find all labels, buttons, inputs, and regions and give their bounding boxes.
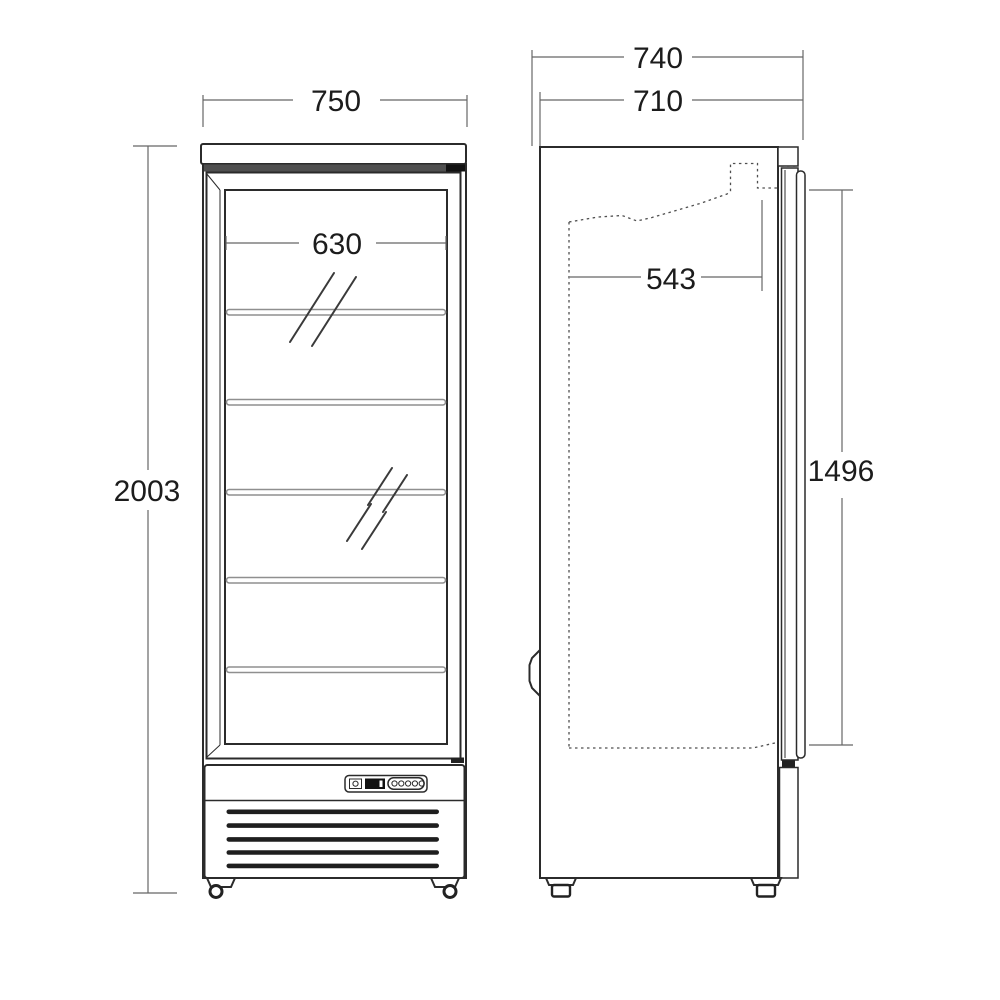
side-door-handle	[797, 171, 806, 758]
dim-label-710: 710	[633, 85, 683, 118]
cabinet-dimension-drawing: 630	[0, 0, 1000, 1000]
shelf-1	[227, 310, 446, 316]
display-digit-segment	[380, 781, 383, 788]
side-lower-panel	[780, 768, 799, 879]
caster-bracket-left	[207, 878, 235, 887]
side-door-top-cap	[778, 147, 798, 166]
shelf-4	[227, 578, 446, 584]
dim-label-750: 750	[311, 85, 361, 118]
caster-wheel-left	[210, 886, 222, 898]
dim-label-543: 543	[646, 263, 696, 296]
shelf-3	[227, 490, 446, 496]
dim-front-overall-height: 2003	[114, 146, 181, 893]
side-feet	[546, 878, 781, 897]
side-door-slab	[782, 168, 799, 760]
front-glass-pane	[225, 190, 447, 744]
caster-wheel-right	[444, 886, 456, 898]
side-door-bottom-bracket	[782, 761, 795, 768]
dim-label-2003: 2003	[114, 475, 181, 508]
door-bottom-accent	[451, 758, 464, 764]
control-panel	[345, 776, 427, 793]
grille-bar	[227, 823, 440, 828]
front-header-strip	[204, 165, 465, 172]
foot-right	[757, 885, 775, 897]
dim-label-630: 630	[312, 228, 362, 261]
technical-drawing-page: 630	[0, 0, 1000, 1000]
grille-bar	[227, 864, 440, 869]
front-top-cap	[201, 144, 466, 164]
front-view: 630	[201, 144, 466, 898]
side-back-bracket	[530, 650, 541, 696]
front-header-strip-end-cap	[446, 165, 465, 172]
dim-side-door-height: 1496	[808, 190, 875, 745]
side-cabinet-body	[540, 147, 778, 878]
dim-label-740: 740	[633, 42, 683, 75]
dim-label-1496: 1496	[808, 455, 875, 488]
side-view	[530, 147, 806, 897]
shelf-5	[227, 667, 446, 673]
dim-front-overall-width: 750	[203, 85, 467, 127]
foot-left	[552, 885, 570, 897]
grille-bar	[227, 850, 440, 855]
grille-bar	[227, 837, 440, 842]
caster-bracket-right	[431, 878, 459, 887]
front-casters	[207, 878, 459, 898]
shelf-2	[227, 400, 446, 406]
grille-bar	[227, 810, 440, 815]
dim-side-cabinet-depth: 710	[540, 85, 803, 146]
